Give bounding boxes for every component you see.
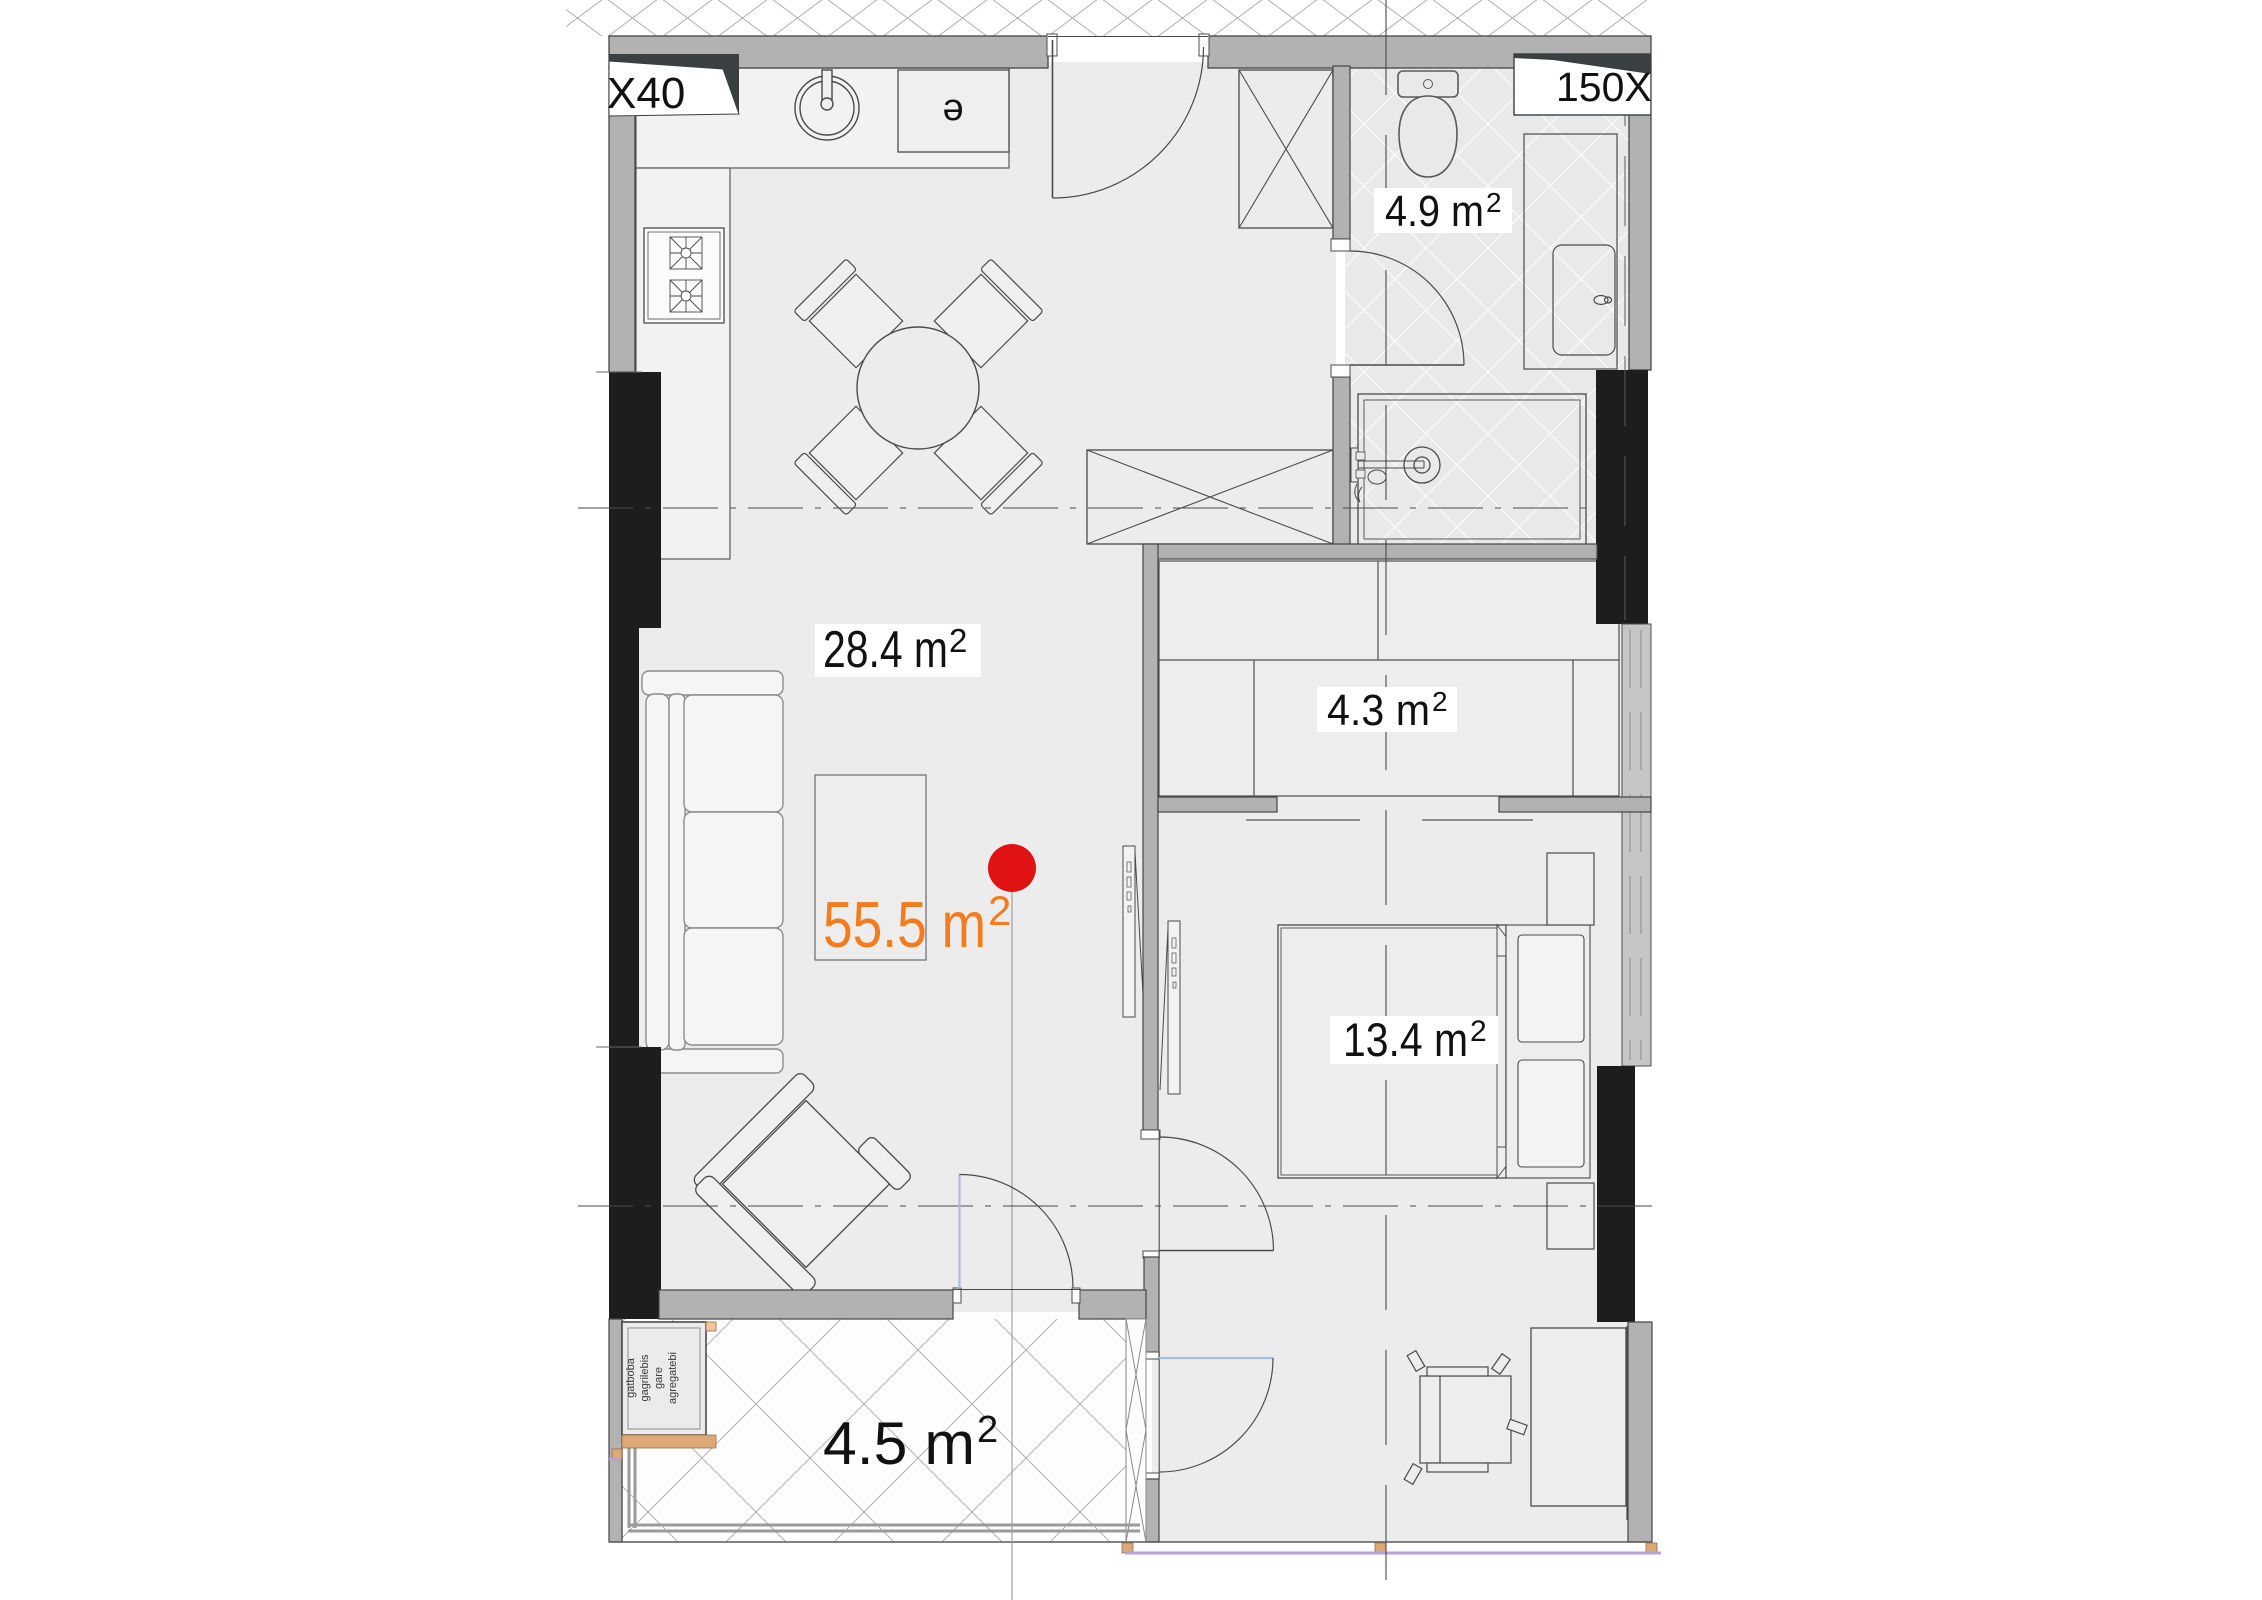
- svg-text:2: 2: [988, 887, 1011, 934]
- svg-text:2: 2: [949, 622, 967, 659]
- svg-text:4.3 m: 4.3 m: [1327, 686, 1430, 735]
- svg-text:2: 2: [1432, 686, 1448, 717]
- svg-text:gatboba: gatboba: [625, 1357, 637, 1398]
- svg-text:13.4 m: 13.4 m: [1343, 1013, 1468, 1066]
- svg-text:55.5 m: 55.5 m: [823, 888, 986, 961]
- svg-text:2: 2: [1470, 1015, 1487, 1048]
- svg-text:2: 2: [977, 1409, 998, 1451]
- svg-text:28.4 m: 28.4 m: [823, 621, 948, 679]
- svg-text:2: 2: [1486, 187, 1502, 218]
- svg-text:X40: X40: [607, 69, 685, 118]
- svg-text:gagrilebis: gagrilebis: [639, 1354, 651, 1402]
- svg-text:4.5 m: 4.5 m: [823, 1410, 975, 1477]
- svg-text:agregatebi: agregatebi: [667, 1352, 679, 1404]
- svg-text:4.9 m: 4.9 m: [1385, 187, 1484, 236]
- svg-text:gare: gare: [653, 1367, 665, 1389]
- svg-text:e: e: [942, 91, 963, 133]
